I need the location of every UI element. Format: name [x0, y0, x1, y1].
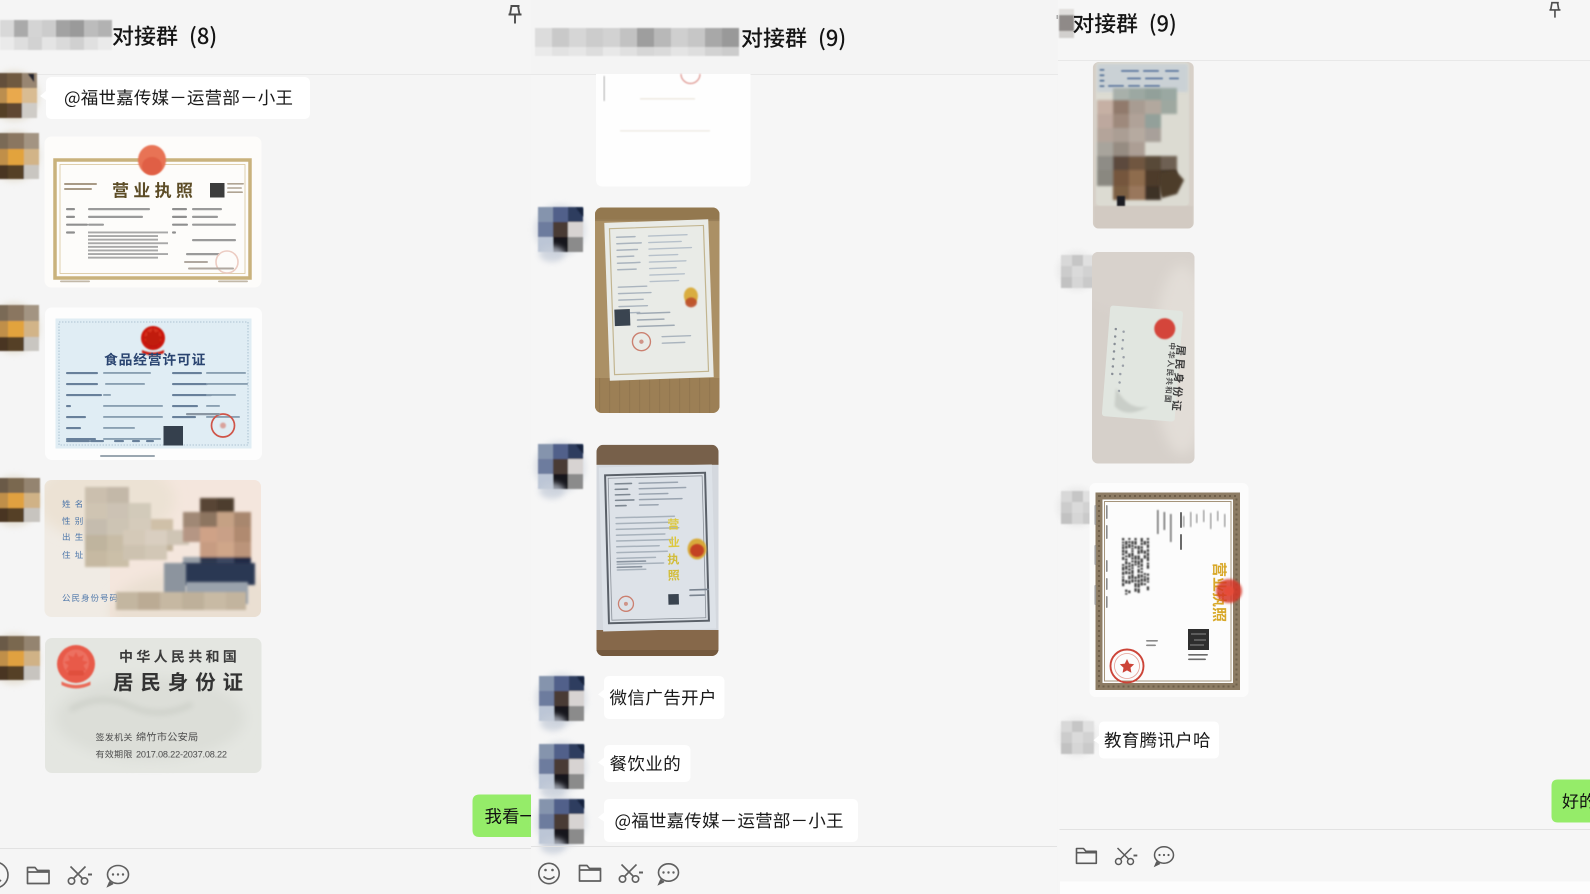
- svg-text:2017.08.22-2037.08.22: 2017.08.22-2037.08.22: [136, 750, 227, 760]
